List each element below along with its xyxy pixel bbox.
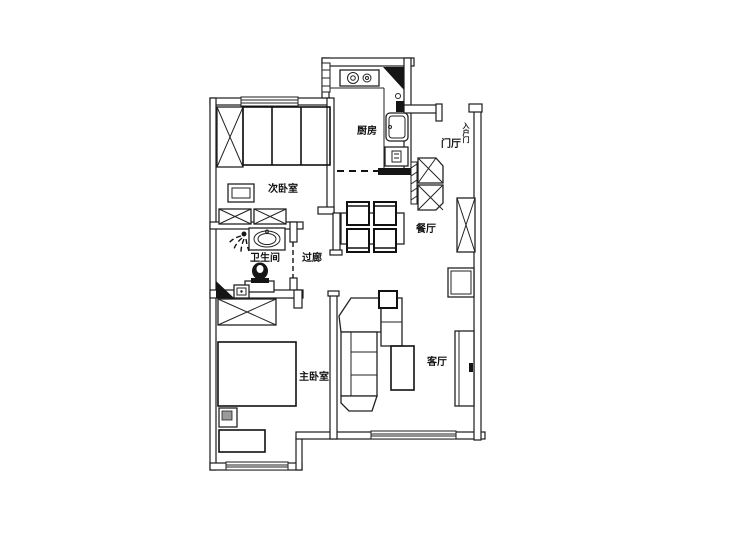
label-dining: 餐厅 [415, 222, 436, 235]
coffee-table [391, 346, 414, 390]
wall-living-west-cap [328, 291, 339, 296]
master-dresser [219, 430, 265, 452]
window-living-bottom [371, 431, 456, 439]
bedroom2-stool [228, 184, 254, 202]
master-furniture [218, 299, 296, 452]
window-master-bottom [226, 462, 288, 470]
shoe-cabinet-lower [418, 185, 443, 210]
kitchen-corner-cabinet-icon [383, 67, 404, 90]
wall-entry-top [404, 105, 438, 113]
floor-plan-canvas: 厨房 门厅 次卧室 卫生间 过廊 餐厅 主卧室 客厅 入户门 [0, 0, 740, 550]
stove-icon [340, 70, 379, 86]
wall-step-corridor [318, 207, 334, 214]
washer-icon [234, 285, 249, 298]
sofa-side-table [379, 291, 397, 308]
bathroom-sink-icon [249, 228, 285, 250]
label-bedroom2: 次卧室 [268, 182, 298, 195]
wall-corridor-dining-cap [330, 250, 342, 255]
wall-step-bottom [296, 438, 302, 470]
wall-bathroom-corner-step [294, 290, 302, 308]
dining-tall-cabinet [457, 198, 475, 252]
bedroom2-cabinet-left [219, 209, 251, 224]
master-wardrobe [218, 299, 276, 325]
wall-corridor-dining [333, 213, 340, 254]
bedroom2-wardrobe [217, 107, 243, 167]
label-entry-door: 入户门 [462, 122, 471, 144]
label-kitchen: 厨房 [357, 124, 377, 137]
shoe-cabinet-upper [418, 158, 443, 183]
wall-hatch [411, 162, 417, 204]
label-master-bedroom: 主卧室 [299, 370, 329, 383]
window-bedroom2-top [241, 97, 298, 106]
label-bathroom: 卫生间 [250, 251, 280, 264]
kitchen-appliance-icon [385, 147, 408, 166]
bedroom2-cabinet-right [254, 209, 286, 224]
label-entry-hall: 门厅 [441, 137, 461, 150]
wall-right [474, 107, 481, 440]
wall-right-top-stub [469, 104, 482, 112]
wall-left [210, 98, 216, 470]
master-bed [218, 342, 296, 406]
kitchen-sink-icon [386, 113, 408, 141]
dining-side-cabinet [448, 268, 474, 297]
master-nightstand [219, 408, 237, 427]
wall-entry-top-cap [436, 104, 442, 121]
entry-fixtures [411, 158, 443, 210]
bedroom2-bed [243, 107, 330, 165]
dining-furniture [341, 198, 475, 297]
label-corridor: 过廊 [302, 251, 322, 264]
kitchen-counter-bar [378, 168, 415, 175]
kitchen-fixtures [330, 67, 408, 168]
wall-kitchen-top [322, 58, 414, 66]
label-living-room: 客厅 [426, 355, 447, 368]
window-kitchen-left [322, 63, 330, 92]
living-furniture [339, 291, 474, 411]
sofa [339, 298, 402, 411]
tv-cabinet [455, 331, 474, 406]
floor-plan-page: 厨房 门厅 次卧室 卫生间 过廊 餐厅 主卧室 客厅 入户门 [0, 0, 740, 550]
kitchen-small-fixture-icon [396, 94, 401, 99]
wall-bathroom-right-upper [290, 222, 297, 242]
shower-icon [229, 232, 249, 253]
bedroom2-furniture [217, 107, 330, 224]
wall-living-west [330, 293, 337, 439]
kitchen-wall-unit-icon [396, 101, 404, 112]
